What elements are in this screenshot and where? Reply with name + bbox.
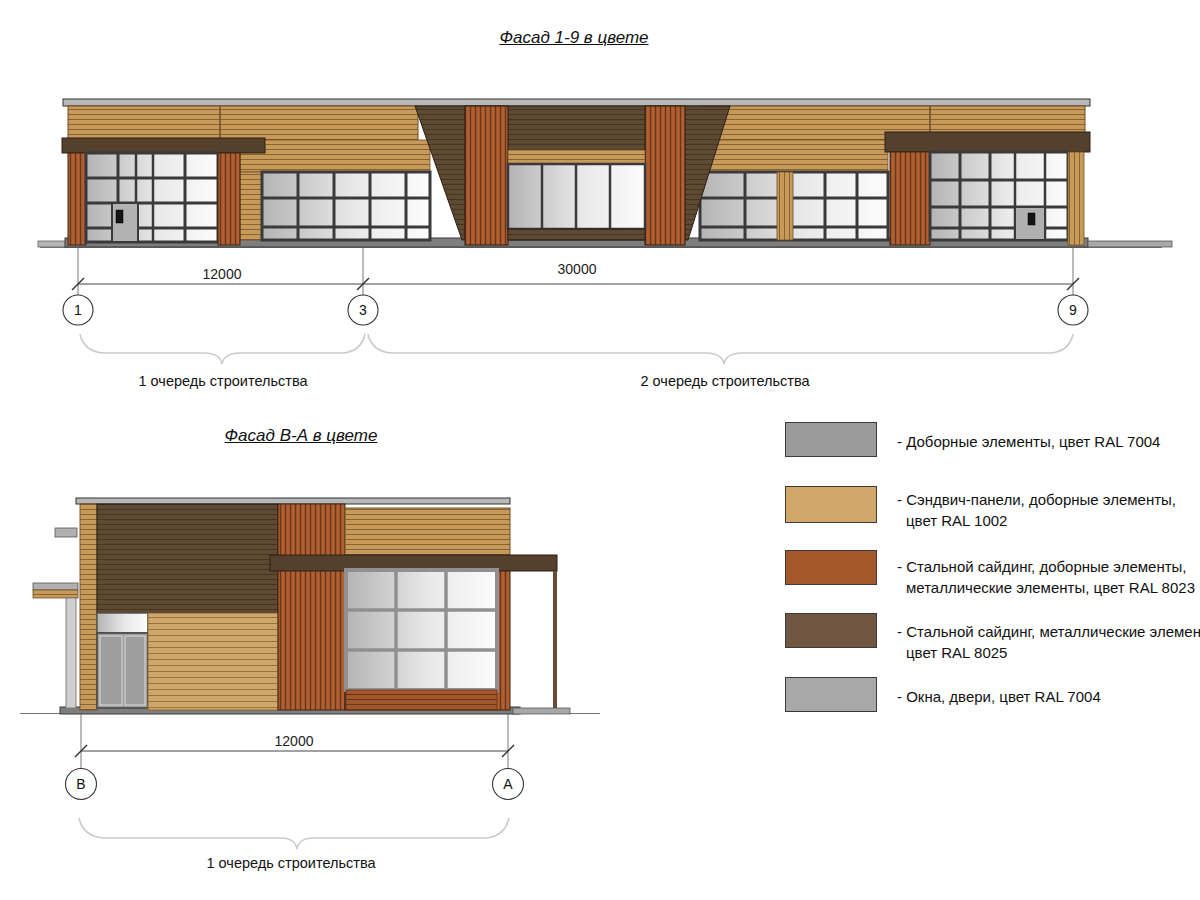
legend-swatch-ral1002 (785, 486, 877, 523)
window-section-2 (262, 172, 430, 240)
legend-label-ral8025: - Стальной сайдинг, металлические элемен… (897, 621, 1200, 663)
phase-label-1-top: 1 очередь строительства (138, 373, 307, 389)
legend-swatch-ral8023 (785, 550, 877, 585)
facade-b-a-title: Фасад В-А в цвете (225, 426, 378, 446)
side-entrance-door (97, 613, 148, 708)
phase-label-2-top: 2 очередь строительства (640, 373, 809, 389)
axis-bubble-3: 3 (359, 302, 367, 318)
legend-swatch-ral8025 (785, 613, 877, 648)
door-handle-1 (116, 210, 123, 223)
curtain-wall-5 (930, 152, 1068, 240)
legend-label-windows: - Окна, двери, цвет RAL 7004 (897, 686, 1101, 707)
axis-bubble-a: А (503, 776, 512, 792)
door-handle-2 (1028, 213, 1035, 225)
facade-b-a-drawing (20, 498, 600, 849)
large-window (346, 570, 497, 690)
legend-swatch-ral7004 (785, 422, 877, 457)
legend-label-ral7004: - Доборные элементы, цвет RAL 7004 (897, 431, 1160, 452)
axis-bubble-9: 9 (1069, 302, 1077, 318)
facade-1-9-title: Фасад 1-9 в цвете (499, 28, 648, 48)
axis-bubble-1: 1 (74, 302, 82, 318)
central-portal (415, 106, 730, 245)
facade-b-a-dimensions (66, 714, 524, 800)
facade-1-9-drawing (38, 99, 1172, 364)
phase-braces-1-9 (80, 334, 1073, 364)
curtain-wall-1 (86, 153, 218, 242)
phase-label-1-bottom: 1 очередь строительства (206, 855, 375, 871)
legend-label-ral1002: - Сэндвич-панели, доборные элементы, цве… (897, 489, 1176, 531)
legend-swatch-windows (785, 677, 877, 712)
dimension-12000-top: 12000 (203, 266, 242, 282)
drawing-sheet: Фасад 1-9 в цвете Фасад В-А в цвете 1200… (0, 0, 1200, 900)
facade-1-9-dimensions (63, 247, 1088, 325)
axis-bubble-v: В (76, 776, 85, 792)
dimension-12000-bottom: 12000 (275, 733, 314, 749)
dimension-30000: 30000 (558, 261, 597, 277)
phase-brace-b-a (79, 818, 509, 849)
legend-label-ral8023: - Стальной сайдинг, доборные элементы, м… (897, 556, 1195, 598)
window-section-3-4 (700, 172, 888, 240)
